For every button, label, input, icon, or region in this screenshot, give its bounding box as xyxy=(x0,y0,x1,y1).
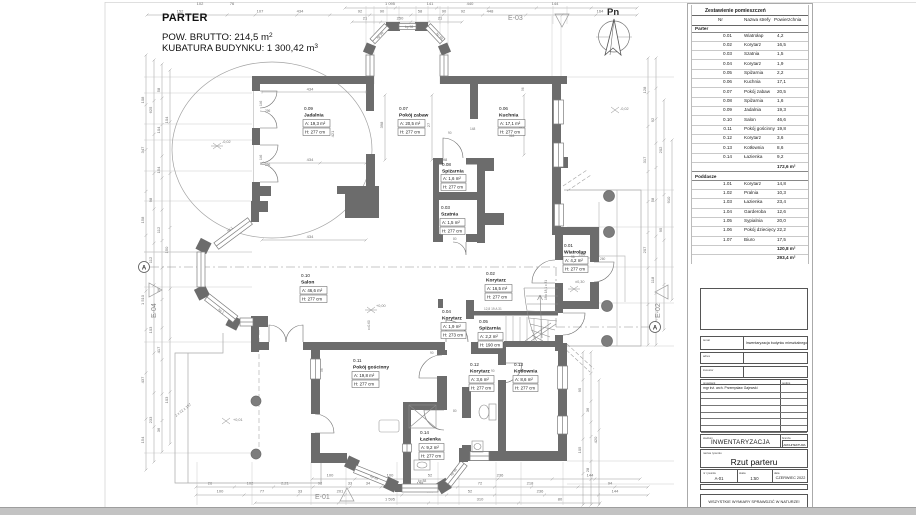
svg-text:Korytarz: Korytarz xyxy=(442,316,462,322)
svg-text:260: 260 xyxy=(600,257,606,261)
svg-text:Wiatrołap: Wiatrołap xyxy=(564,250,586,256)
svg-text:A: 2,2 m²: A: 2,2 m² xyxy=(480,334,498,339)
svg-text:33: 33 xyxy=(298,489,303,494)
svg-text:H: 277 cm: H: 277 cm xyxy=(354,382,374,387)
svg-text:Łazienka: Łazienka xyxy=(420,437,441,443)
svg-text:A: 1,9 m²: A: 1,9 m² xyxy=(443,324,461,329)
svg-text:Pn: Pn xyxy=(607,7,619,18)
svg-text:+0,00: +0,00 xyxy=(376,304,386,308)
svg-text:58: 58 xyxy=(156,87,161,92)
svg-text:141: 141 xyxy=(427,1,434,6)
svg-text:317: 317 xyxy=(642,156,647,163)
svg-text:0.02: 0.02 xyxy=(486,271,495,276)
svg-text:0.09: 0.09 xyxy=(304,106,313,111)
svg-text:437: 437 xyxy=(140,376,145,383)
svg-text:Kuchnia: Kuchnia xyxy=(499,113,519,119)
svg-text:1 095: 1 095 xyxy=(385,1,396,6)
svg-text:146: 146 xyxy=(259,100,263,106)
svg-text:218: 218 xyxy=(527,481,534,486)
svg-text:A: A xyxy=(653,326,658,332)
svg-text:100: 100 xyxy=(327,473,334,478)
svg-text:90: 90 xyxy=(442,9,447,14)
svg-text:310: 310 xyxy=(477,497,484,502)
svg-text:36: 36 xyxy=(585,407,590,412)
svg-text:H: 273 cm: H: 273 cm xyxy=(443,333,463,338)
svg-text:-0,02: -0,02 xyxy=(620,107,629,111)
svg-text:0.12: 0.12 xyxy=(470,362,479,367)
svg-text:A: 1,6 m²: A: 1,6 m² xyxy=(443,176,461,181)
svg-text:28: 28 xyxy=(585,467,590,472)
svg-text:90: 90 xyxy=(430,351,434,355)
svg-text:A: 17,1 m²: A: 17,1 m² xyxy=(500,121,521,126)
svg-text:910: 910 xyxy=(666,196,671,203)
svg-text:A: 46,6 m²: A: 46,6 m² xyxy=(302,288,323,293)
svg-text:0.04: 0.04 xyxy=(442,309,451,314)
svg-text:144: 144 xyxy=(612,489,619,494)
svg-text:2 x 22 x 157: 2 x 22 x 157 xyxy=(174,403,192,418)
svg-text:0.06: 0.06 xyxy=(499,106,508,111)
svg-text:58: 58 xyxy=(650,197,655,202)
svg-text:104: 104 xyxy=(164,116,169,123)
svg-text:144: 144 xyxy=(587,473,594,478)
svg-text:+0,01: +0,01 xyxy=(233,418,243,422)
svg-text:92: 92 xyxy=(358,9,363,14)
svg-text:347: 347 xyxy=(140,146,145,153)
svg-text:100: 100 xyxy=(217,489,224,494)
svg-text:E-01: E-01 xyxy=(315,494,330,501)
svg-text:417: 417 xyxy=(156,346,161,353)
svg-text:108: 108 xyxy=(140,96,145,103)
svg-text:0.11: 0.11 xyxy=(353,358,362,363)
svg-text:H: 277 cm: H: 277 cm xyxy=(443,185,463,190)
svg-text:Salon: Salon xyxy=(301,280,314,286)
svg-text:112: 112 xyxy=(156,226,161,233)
svg-text:103: 103 xyxy=(148,326,153,333)
svg-text:21: 21 xyxy=(363,16,368,21)
svg-text:0.03: 0.03 xyxy=(441,205,450,210)
svg-text:296: 296 xyxy=(265,109,271,113)
svg-text:434: 434 xyxy=(297,9,304,14)
svg-text:0.10: 0.10 xyxy=(301,273,310,278)
svg-text:154: 154 xyxy=(156,166,161,173)
svg-text:Szatnia: Szatnia xyxy=(441,212,458,218)
svg-text:80: 80 xyxy=(453,237,457,241)
svg-text:H: 277 cm: H: 277 cm xyxy=(305,130,325,135)
svg-text:0.14: 0.14 xyxy=(420,430,429,435)
svg-text:A: 19,8 m²: A: 19,8 m² xyxy=(354,373,375,378)
svg-text:296: 296 xyxy=(265,163,271,167)
svg-text:0.07: 0.07 xyxy=(399,106,408,111)
svg-text:21: 21 xyxy=(438,16,443,21)
svg-text:0.01: 0.01 xyxy=(564,243,573,248)
svg-text:421: 421 xyxy=(330,130,335,137)
svg-text:102: 102 xyxy=(197,1,204,6)
svg-text:92: 92 xyxy=(461,9,466,14)
svg-text:0.05: 0.05 xyxy=(479,319,488,324)
svg-text:12,8 19 A 31: 12,8 19 A 31 xyxy=(484,307,502,311)
svg-text:Kotłownia: Kotłownia xyxy=(514,369,538,375)
svg-text:72: 72 xyxy=(478,481,483,486)
svg-text:kp 98: kp 98 xyxy=(405,25,413,29)
svg-text:236: 236 xyxy=(537,489,544,494)
svg-text:52: 52 xyxy=(468,489,473,494)
svg-text:kp 88: kp 88 xyxy=(418,479,426,483)
svg-text:H: 277 cm: H: 277 cm xyxy=(302,297,322,302)
svg-text:1 595: 1 595 xyxy=(385,497,396,502)
svg-text:E-02: E-02 xyxy=(655,303,662,318)
svg-text:154: 154 xyxy=(140,436,145,443)
svg-text:98: 98 xyxy=(320,368,324,372)
svg-text:128: 128 xyxy=(642,86,647,93)
svg-text:A: 20,5 m²: A: 20,5 m² xyxy=(400,121,421,126)
svg-text:94: 94 xyxy=(608,481,613,486)
svg-text:434: 434 xyxy=(307,157,314,162)
svg-text:H: 277 cm: H: 277 cm xyxy=(515,386,535,391)
svg-text:80: 80 xyxy=(558,497,563,502)
svg-text:92: 92 xyxy=(650,117,655,122)
svg-text:Spiżarnia: Spiżarnia xyxy=(442,169,464,175)
svg-text:158: 158 xyxy=(140,216,145,223)
svg-text:236: 236 xyxy=(497,473,504,478)
svg-text:18 x 18,1 x 31: 18 x 18,1 x 31 xyxy=(544,280,548,300)
svg-text:A: 8,6 m²: A: 8,6 m² xyxy=(515,377,533,382)
svg-text:77: 77 xyxy=(260,489,265,494)
svg-text:146: 146 xyxy=(259,154,263,160)
svg-text:112: 112 xyxy=(148,256,153,263)
svg-text:202: 202 xyxy=(658,146,663,153)
svg-text:H: 277 cm: H: 277 cm xyxy=(400,130,420,135)
svg-text:H: 190 cm: H: 190 cm xyxy=(480,343,500,348)
svg-text:434: 434 xyxy=(307,87,314,92)
svg-text:A: 19,3 m²: A: 19,3 m² xyxy=(305,121,326,126)
svg-text:90: 90 xyxy=(380,9,385,14)
svg-text:95: 95 xyxy=(577,387,582,392)
svg-text:448: 448 xyxy=(487,9,494,14)
svg-text:1 510: 1 510 xyxy=(140,294,145,305)
svg-text:98: 98 xyxy=(571,255,575,259)
svg-text:H: 277 cm: H: 277 cm xyxy=(471,386,491,391)
svg-text:-0,02: -0,02 xyxy=(222,140,231,144)
svg-text:58: 58 xyxy=(418,9,423,14)
svg-text:95: 95 xyxy=(658,227,663,232)
svg-text:233: 233 xyxy=(148,416,153,423)
svg-text:Pokój gościnny: Pokój gościnny xyxy=(353,365,389,371)
svg-text:105: 105 xyxy=(577,446,582,453)
svg-text:118: 118 xyxy=(650,276,655,283)
svg-text:KUBATURA BUDYNKU: 1 300,42 m3: KUBATURA BUDYNKU: 1 300,42 m3 xyxy=(162,43,318,54)
svg-text:H: 277 cm: H: 277 cm xyxy=(565,267,585,272)
svg-text:x=0.60: x=0.60 xyxy=(367,320,371,330)
svg-text:76: 76 xyxy=(230,1,235,6)
svg-text:Korytarz: Korytarz xyxy=(470,369,490,375)
svg-text:201: 201 xyxy=(337,489,344,494)
svg-text:52: 52 xyxy=(428,473,433,478)
svg-text:A: A xyxy=(142,266,147,272)
svg-text:103: 103 xyxy=(164,396,169,403)
svg-text:207: 207 xyxy=(642,246,647,253)
svg-text:100: 100 xyxy=(387,473,394,478)
svg-text:625: 625 xyxy=(148,106,153,113)
svg-text:98: 98 xyxy=(148,197,153,202)
svg-text:36: 36 xyxy=(156,427,161,432)
svg-text:H: 277 cm: H: 277 cm xyxy=(421,454,441,459)
svg-text:144: 144 xyxy=(552,1,559,6)
svg-text:0.13: 0.13 xyxy=(514,362,523,367)
svg-text:33: 33 xyxy=(348,481,353,486)
svg-text:440: 440 xyxy=(467,1,474,6)
svg-text:A: 16,5 m²: A: 16,5 m² xyxy=(487,286,508,291)
svg-text:27: 27 xyxy=(426,122,431,127)
svg-text:E-03: E-03 xyxy=(508,15,523,22)
svg-text:90: 90 xyxy=(448,131,452,135)
svg-text:±0,30: ±0,30 xyxy=(575,280,584,284)
svg-text:A: 1,5 m²: A: 1,5 m² xyxy=(442,220,460,225)
svg-text:PARTER: PARTER xyxy=(162,12,208,24)
svg-text:56: 56 xyxy=(521,87,525,91)
svg-text:POW. BRUTTO: 214,5 m2: POW. BRUTTO: 214,5 m2 xyxy=(162,32,273,43)
svg-text:Spiżarnia: Spiżarnia xyxy=(479,326,501,332)
svg-text:150: 150 xyxy=(164,246,169,253)
svg-text:Pokój zabaw: Pokój zabaw xyxy=(399,113,429,119)
svg-text:104: 104 xyxy=(156,126,161,133)
svg-text:34: 34 xyxy=(366,481,371,486)
svg-text:0.08: 0.08 xyxy=(442,162,451,167)
svg-text:90: 90 xyxy=(491,369,495,373)
svg-text:E-04: E-04 xyxy=(151,303,158,318)
svg-text:H: 277 cm: H: 277 cm xyxy=(442,229,462,234)
svg-text:107: 107 xyxy=(257,9,264,14)
svg-text:398: 398 xyxy=(379,121,384,128)
svg-text:434: 434 xyxy=(307,234,314,239)
svg-text:A: 9,2 m²: A: 9,2 m² xyxy=(421,445,439,450)
svg-text:148: 148 xyxy=(470,127,476,131)
svg-text:Korytarz: Korytarz xyxy=(486,278,506,284)
svg-text:Jadalnia: Jadalnia xyxy=(304,113,324,119)
svg-text:A: 3,6 m²: A: 3,6 m² xyxy=(471,377,489,382)
svg-text:250: 250 xyxy=(397,16,404,21)
svg-text:H: 277 cm: H: 277 cm xyxy=(487,295,507,300)
svg-text:80: 80 xyxy=(453,409,457,413)
svg-text:164: 164 xyxy=(597,9,604,14)
svg-text:420: 420 xyxy=(593,436,598,443)
svg-text:318: 318 xyxy=(509,134,515,138)
